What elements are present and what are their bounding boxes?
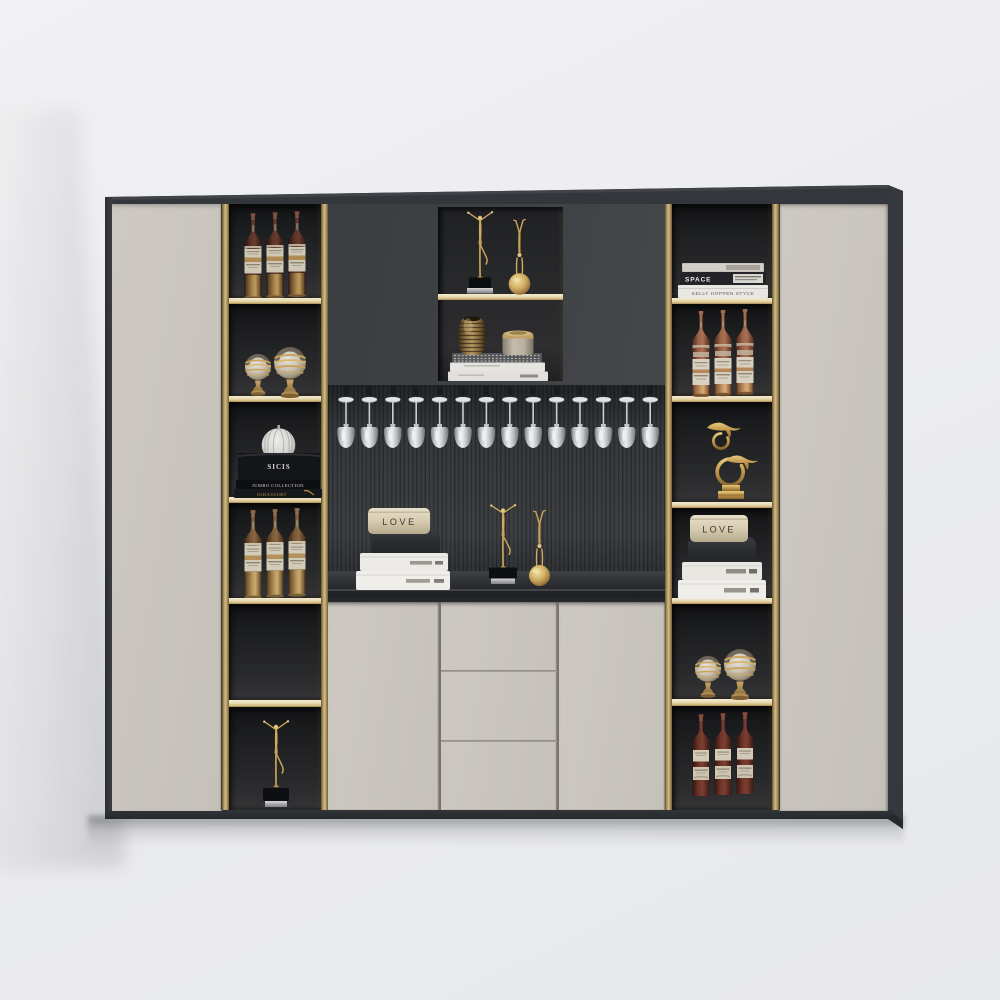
svg-text:SICIS: SICIS xyxy=(267,463,290,471)
svg-text:LOVE: LOVE xyxy=(702,525,736,535)
svg-text:SPACE: SPACE xyxy=(685,276,711,283)
svg-text:IGRASSURT: IGRASSURT xyxy=(257,492,287,497)
svg-text:LOVE: LOVE xyxy=(382,517,416,527)
svg-text:KELLY HOPPEN STYCE: KELLY HOPPEN STYCE xyxy=(692,291,754,297)
svg-text:JUMBO COLLECTION: JUMBO COLLECTION xyxy=(252,483,304,488)
